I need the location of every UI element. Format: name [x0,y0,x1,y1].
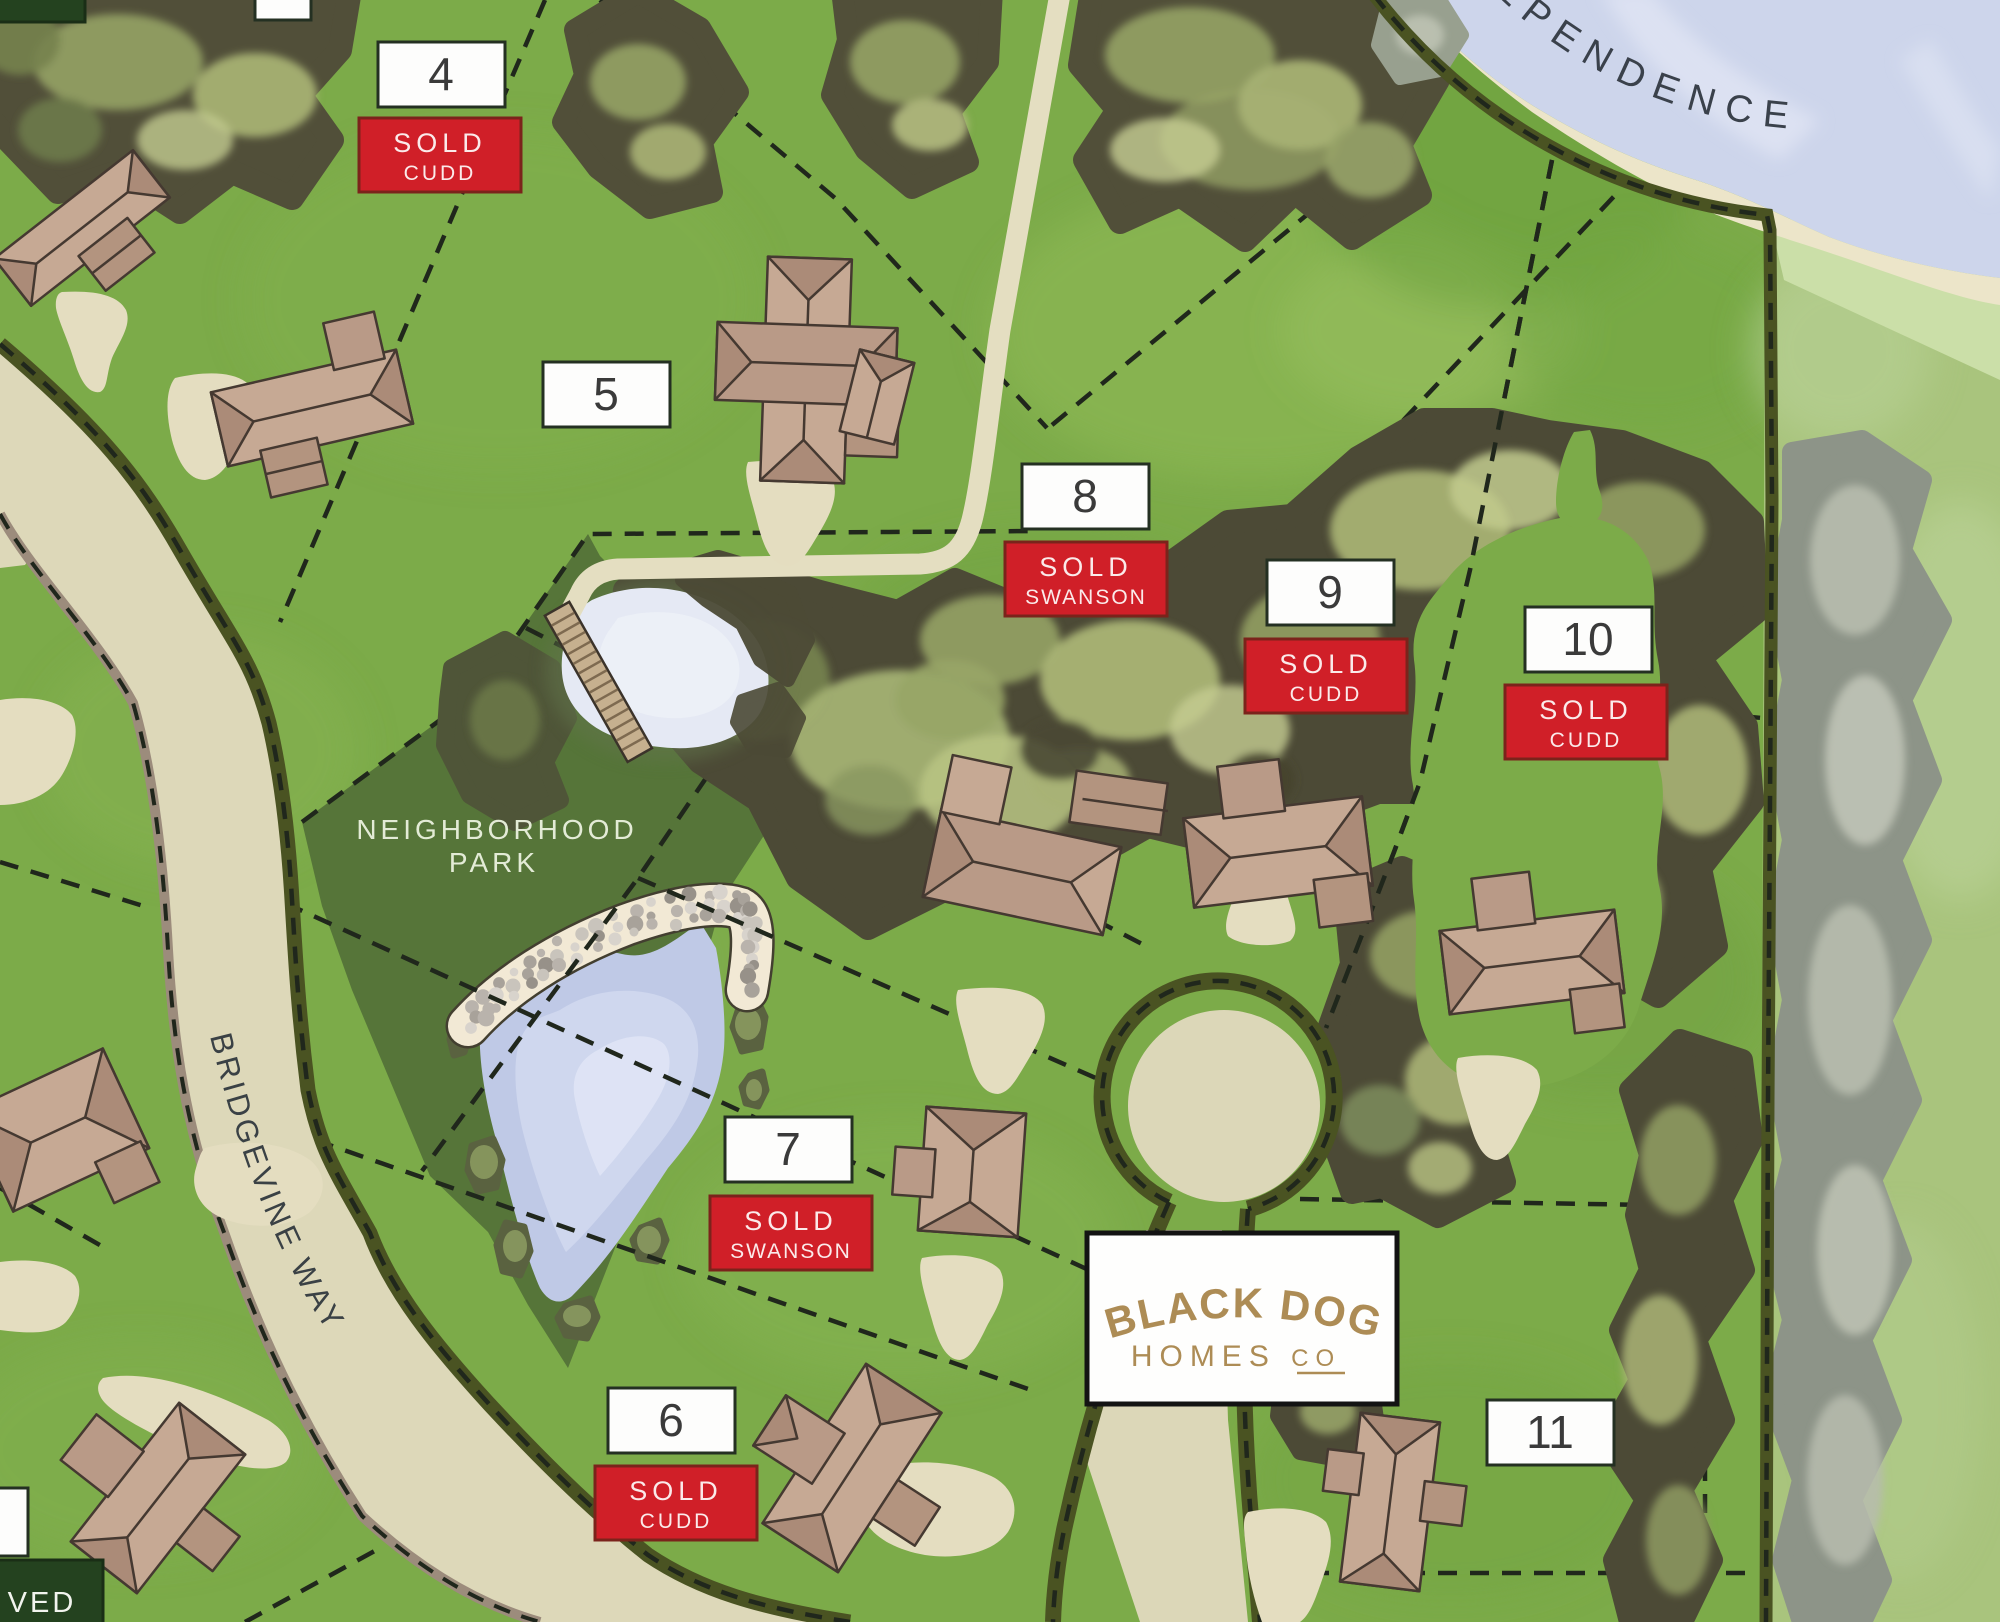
svg-text:10: 10 [1562,613,1613,665]
svg-text:CUDD: CUDD [1290,683,1363,706]
svg-text:HOMES CO: HOMES CO [1131,1340,1341,1373]
svg-text:8: 8 [1072,470,1098,522]
svg-text:CUDD: CUDD [1550,729,1623,752]
svg-text:SOLD: SOLD [1039,552,1133,582]
svg-text:SOLD: SOLD [1279,649,1373,679]
svg-text:SOLD: SOLD [629,1476,723,1506]
svg-text:SOLD: SOLD [1539,695,1633,725]
svg-text:CUDD: CUDD [640,1510,713,1533]
svg-text:SWANSON: SWANSON [730,1240,852,1263]
svg-text:4: 4 [428,48,454,100]
svg-text:SOLD: SOLD [744,1206,838,1236]
svg-text:SWANSON: SWANSON [1025,586,1147,609]
svg-text:7: 7 [775,1123,801,1175]
svg-text:PARK: PARK [449,847,539,878]
svg-text:9: 9 [1317,566,1343,618]
svg-text:6: 6 [658,1394,684,1446]
svg-text:11: 11 [1526,1406,1574,1458]
svg-text:SOLD: SOLD [393,128,487,158]
svg-text:VED: VED [8,1587,77,1619]
svg-text:5: 5 [593,368,619,420]
svg-text:NEIGHBORHOOD: NEIGHBORHOOD [356,814,637,845]
svg-text:CUDD: CUDD [404,162,477,185]
